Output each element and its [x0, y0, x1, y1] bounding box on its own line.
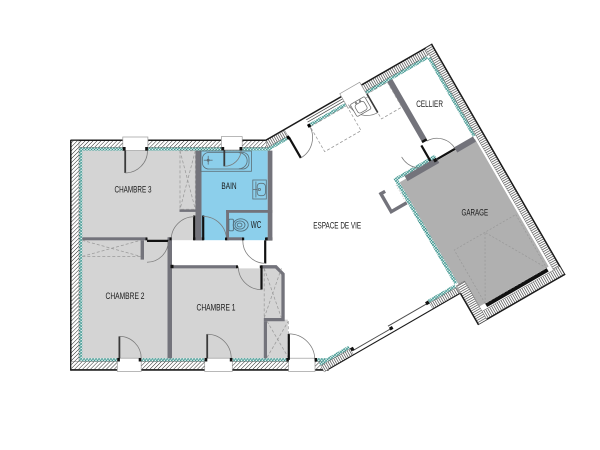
svg-text:CHAMBRE 3: CHAMBRE 3 [115, 184, 152, 195]
svg-text:CELLIER: CELLIER [416, 99, 443, 110]
svg-text:ESPACE DE VIE: ESPACE DE VIE [313, 221, 361, 232]
svg-text:GARAGE: GARAGE [461, 207, 488, 218]
svg-text:CHAMBRE 2: CHAMBRE 2 [106, 291, 145, 301]
svg-text:WC: WC [251, 219, 261, 231]
svg-text:BAIN: BAIN [221, 181, 236, 191]
svg-text:CHAMBRE 1: CHAMBRE 1 [197, 302, 236, 312]
